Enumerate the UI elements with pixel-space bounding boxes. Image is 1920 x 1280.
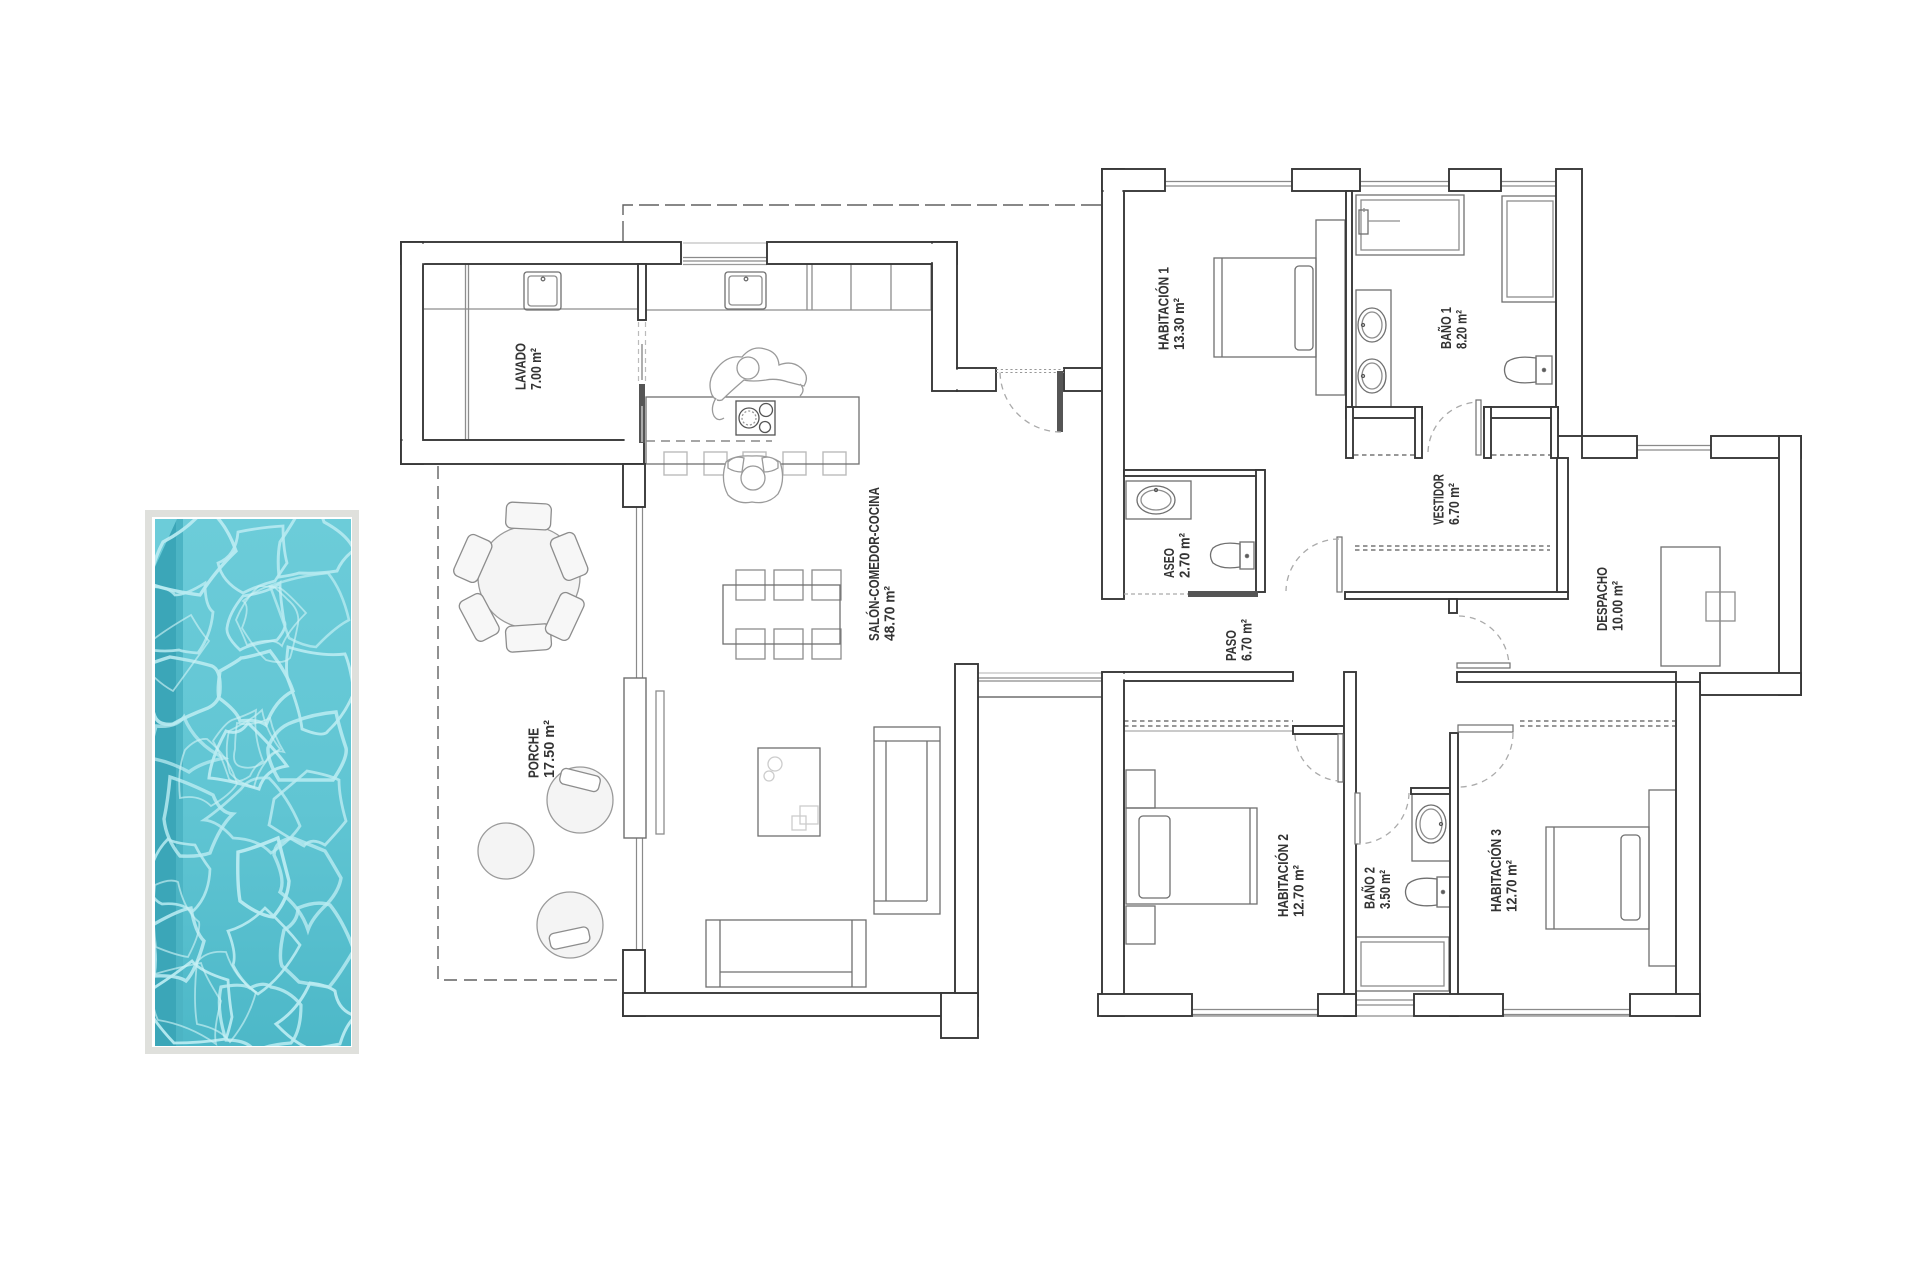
svg-text:BAÑO 18.20 m²: BAÑO 18.20 m² (1437, 307, 1471, 349)
svg-text:LAVADO7.00 m²: LAVADO7.00 m² (513, 343, 546, 390)
svg-text:PORCHE17.50 m²: PORCHE17.50 m² (526, 720, 559, 778)
svg-text:BAÑO 23.50 m²: BAÑO 23.50 m² (1361, 867, 1395, 909)
